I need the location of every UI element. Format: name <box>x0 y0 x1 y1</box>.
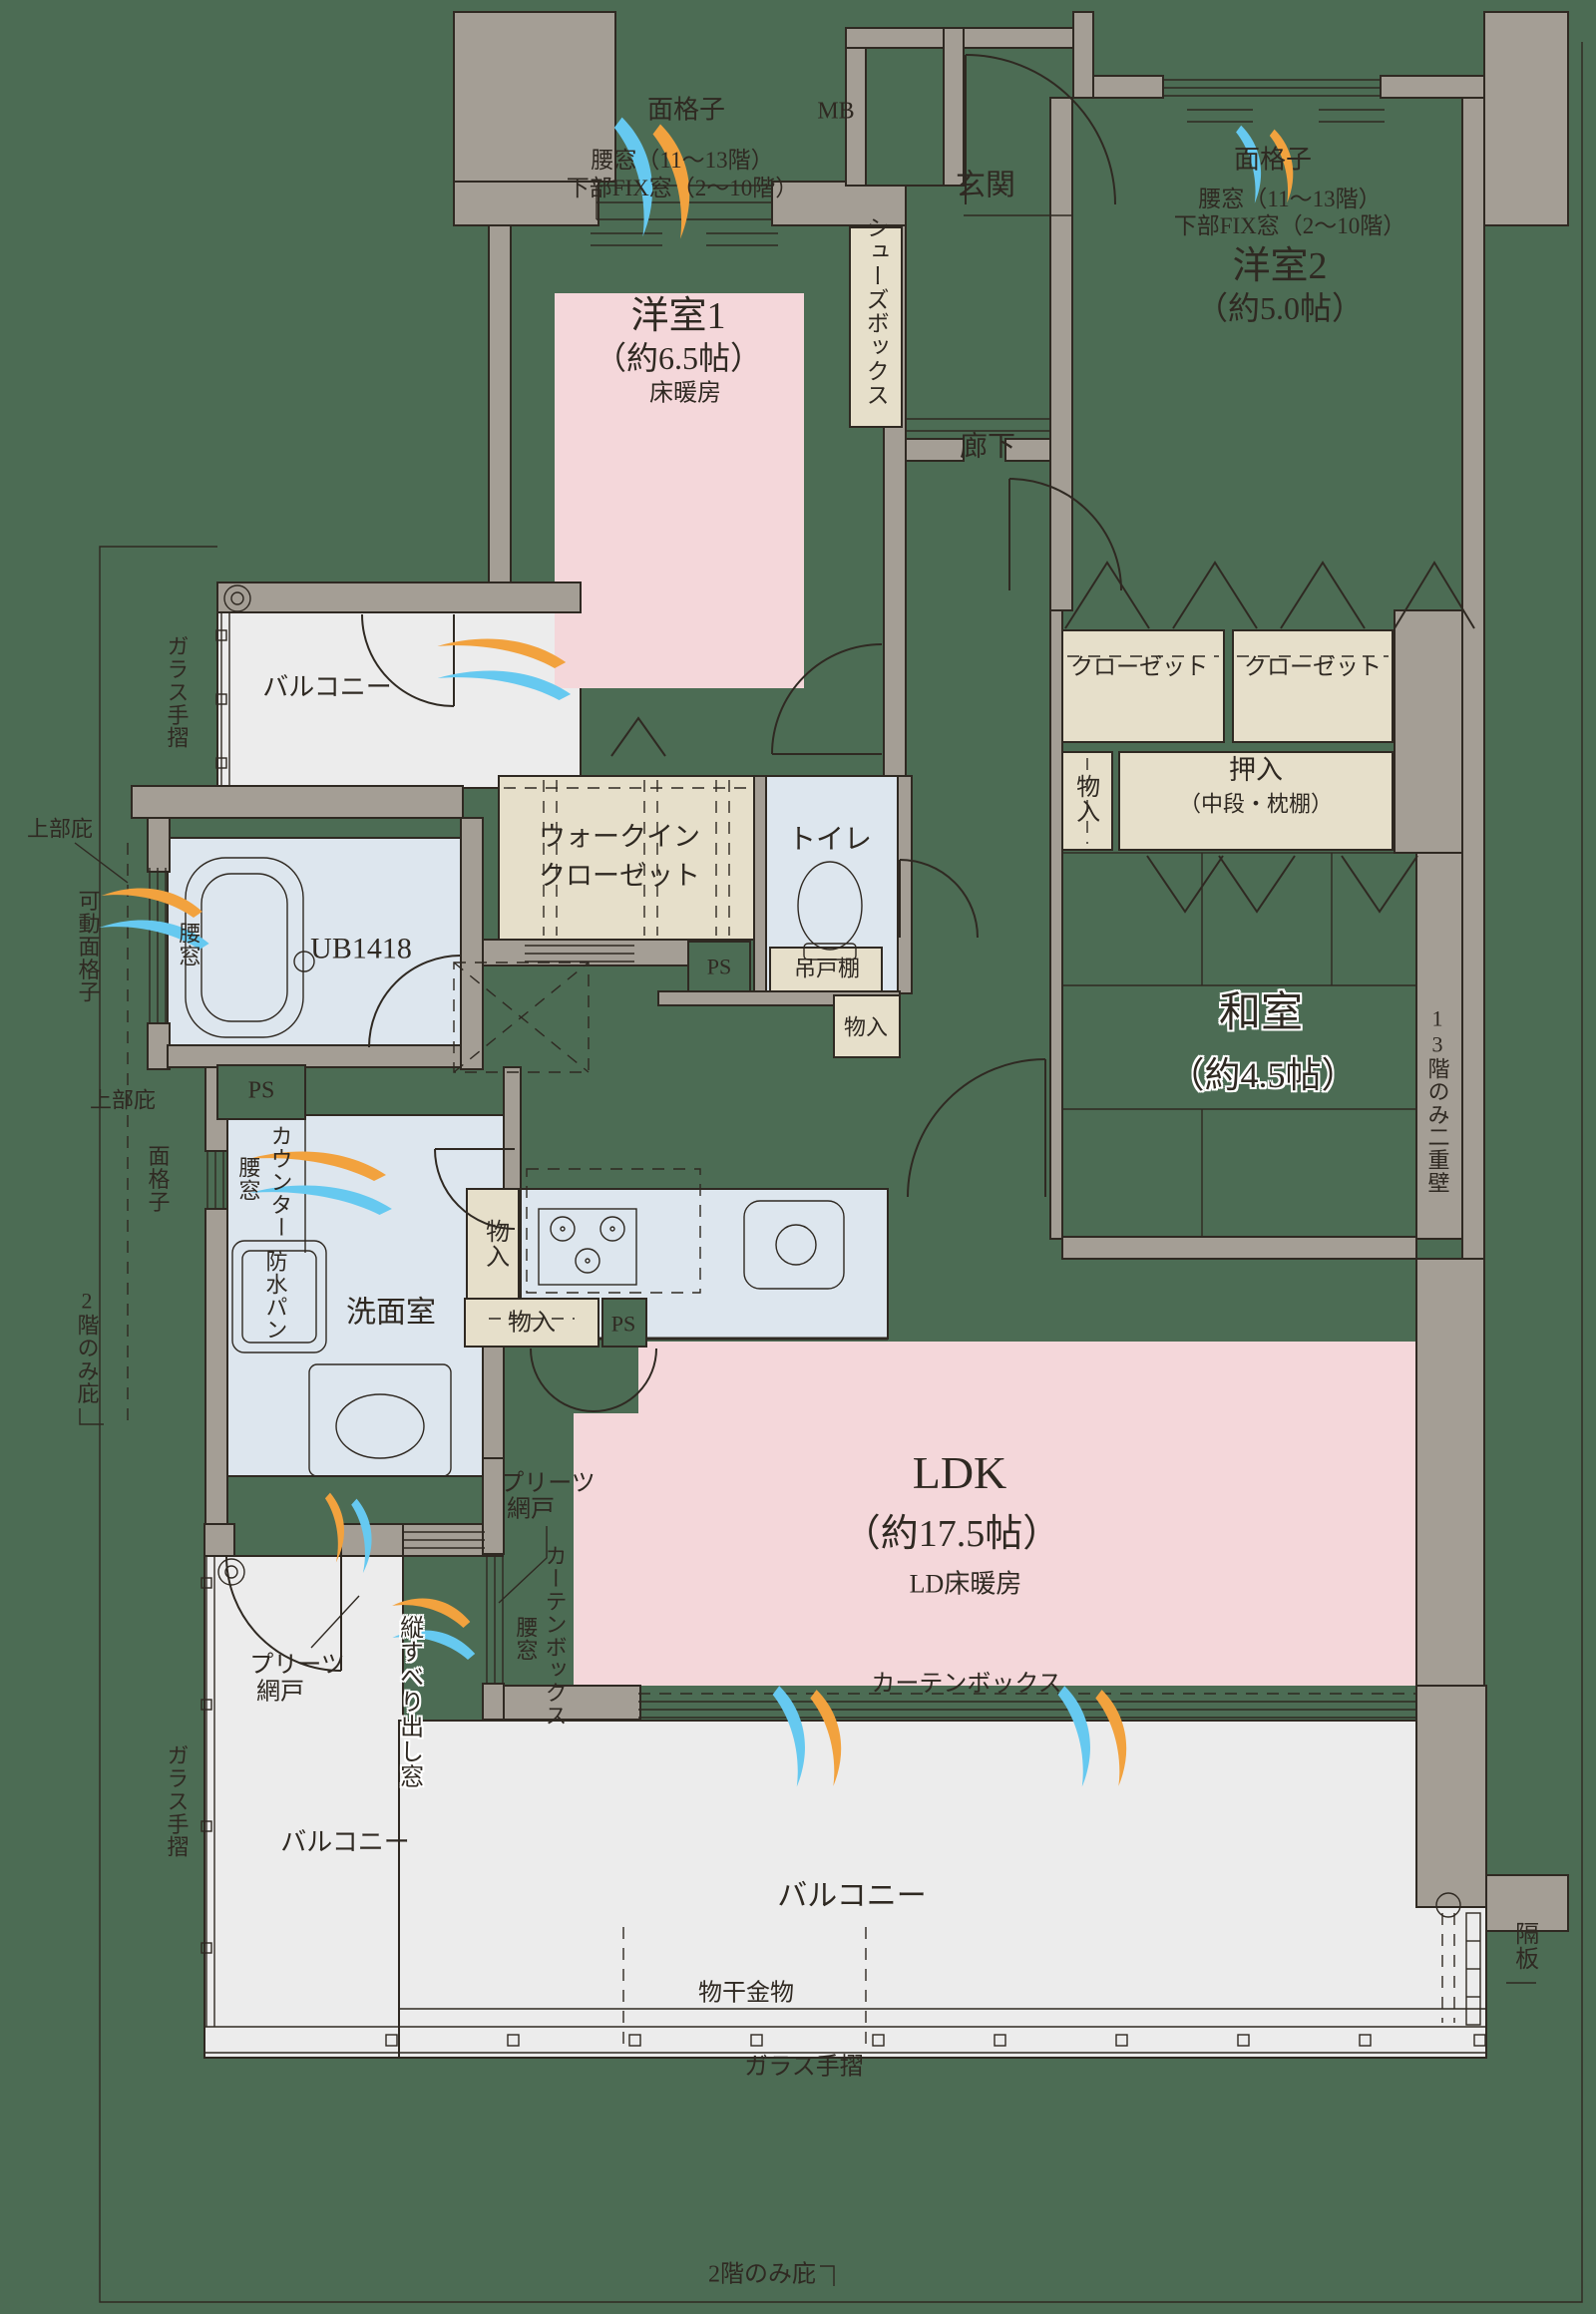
window-washroom <box>207 1151 223 1209</box>
label-ps-bath: PS <box>248 1078 275 1103</box>
label-curtain-box-left: カーテンボックス <box>543 1544 566 1727</box>
label-ps-kitchen: PS <box>611 1312 635 1335</box>
label-nikai-hisashi-left: 2階のみ庇 <box>75 1288 98 1404</box>
label-rouka: 廊下 <box>960 432 1015 461</box>
label-monoire-toilet: 物入 <box>844 1015 888 1038</box>
label-toilet: トイレ <box>788 825 872 854</box>
label-curtain-box-bottom: カーテンボックス <box>871 1672 1061 1697</box>
window-room2-top <box>1163 80 1385 122</box>
label-mengoshi-top-left: 面格子 <box>647 96 725 123</box>
label-room1-name: 洋室1 <box>630 297 725 337</box>
label-bousui-pan: 防水パン <box>263 1250 286 1342</box>
label-wic-line2: クローゼット <box>539 862 700 890</box>
hall-ldk-door <box>908 1059 1045 1197</box>
label-koshimado-bath: 腰窓 <box>177 922 199 967</box>
label-window-note-left-1: 腰窓（11～13階） <box>591 149 773 173</box>
label-mengoshi-washroom: 面格子 <box>146 1145 169 1214</box>
kitchen-double-door <box>531 1349 656 1411</box>
label-tatesuberi: 縦すべり出し窓 <box>395 1615 420 1789</box>
label-ldk-name: LDK <box>913 1449 1007 1497</box>
label-glass-rail-top-left: ガラス手摺 <box>165 635 188 749</box>
label-ps-mid: PS <box>707 955 731 977</box>
label-kadou-mengoshi: 可動面格子 <box>76 890 99 1003</box>
label-joubu-hisashi-1: 上部庇 <box>27 817 93 840</box>
label-monohoshi: 物干金物 <box>698 1981 794 2006</box>
label-room2-name: 洋室2 <box>1232 247 1327 287</box>
label-window-note-right-1: 腰窓（11～13階） <box>1198 188 1381 211</box>
label-genkan: 玄関 <box>956 170 1015 201</box>
label-senmenshitsu: 洗面室 <box>346 1297 436 1329</box>
window-ldk-south <box>638 1694 1416 1718</box>
washitsu-tatami <box>1062 853 1428 1239</box>
label-monoire-kitchen-h: 物入 <box>508 1311 556 1336</box>
label-room1-note: 床暖房 <box>649 381 721 406</box>
closet-right <box>1233 630 1393 742</box>
label-monoire-north: 物入 <box>1071 774 1096 824</box>
label-koshimado-washroom: 腰窓 <box>236 1156 259 1202</box>
balcony-bottom-left <box>204 1556 403 2058</box>
label-balcony-top-left: バルコニー <box>262 673 391 700</box>
label-counter: カウンター <box>268 1125 291 1239</box>
label-double-wall: 13階のみ二重壁 <box>1425 1005 1448 1194</box>
label-ldk-size: （約17.5帖） <box>843 1515 1061 1555</box>
label-pleats-bl-2: 網戸 <box>256 1680 304 1705</box>
label-shoes-box: シューズボックス <box>863 215 887 406</box>
label-wic-line1: ウォークイン <box>539 823 700 851</box>
balcony-bottom <box>399 1721 1486 2058</box>
label-monoire-kitchen-v: 物入 <box>481 1219 506 1269</box>
floor-plan: 面格子 腰窓（11～13階） 下部FIX窓（2～10階） MB 玄関 シューズボ… <box>0 0 1596 2314</box>
label-washitsu-name: 和室 <box>1219 991 1303 1035</box>
label-closet-right: クローゼット <box>1244 655 1382 679</box>
label-room1-size: （約6.5帖） <box>595 342 762 376</box>
label-kakuita: 隔板 <box>1510 1921 1535 1971</box>
label-oshiire-note: （中段・枕棚） <box>1179 792 1333 815</box>
label-balcony-bottom: バルコニー <box>777 1880 926 1912</box>
label-oshiire: 押入 <box>1229 756 1283 784</box>
label-koshimado-ldk: 腰窓 <box>514 1616 537 1662</box>
mb-shaft <box>866 48 944 186</box>
label-ub1418: UB1418 <box>310 933 412 964</box>
label-pleats-top-1: プリーツ <box>500 1471 596 1496</box>
label-mb: MB <box>817 99 854 124</box>
label-glass-rail-bottom: ガラス手摺 <box>744 2055 864 2080</box>
label-nikai-hisashi-bottom: 2階のみ庇 <box>708 2262 816 2287</box>
label-tsuridana: 吊戸棚 <box>794 957 860 979</box>
window-kitchen-side <box>487 1554 503 1684</box>
label-mengoshi-top-right: 面格子 <box>1234 146 1312 173</box>
label-balcony-bottom-left: バルコニー <box>280 1828 409 1855</box>
label-pleats-top-2: 網戸 <box>507 1497 555 1522</box>
label-pleats-bl-1: プリーツ <box>249 1653 345 1678</box>
label-glass-rail-bottom-left: ガラス手摺 <box>165 1744 188 1858</box>
label-ldk-note: LD床暖房 <box>910 1570 1022 1597</box>
label-window-note-right-2: 下部FIX窓（2～10階） <box>1174 214 1406 238</box>
label-room2-size: （約5.0帖） <box>1196 292 1364 326</box>
label-washitsu-size: （約4.5帖） <box>1168 1057 1357 1095</box>
closet-left <box>1062 630 1224 742</box>
label-window-note-left-2: 下部FIX窓（2～10階） <box>567 177 799 200</box>
label-joubu-hisashi-2: 上部庇 <box>90 1088 156 1111</box>
label-closet-left: クローゼット <box>1070 655 1208 679</box>
